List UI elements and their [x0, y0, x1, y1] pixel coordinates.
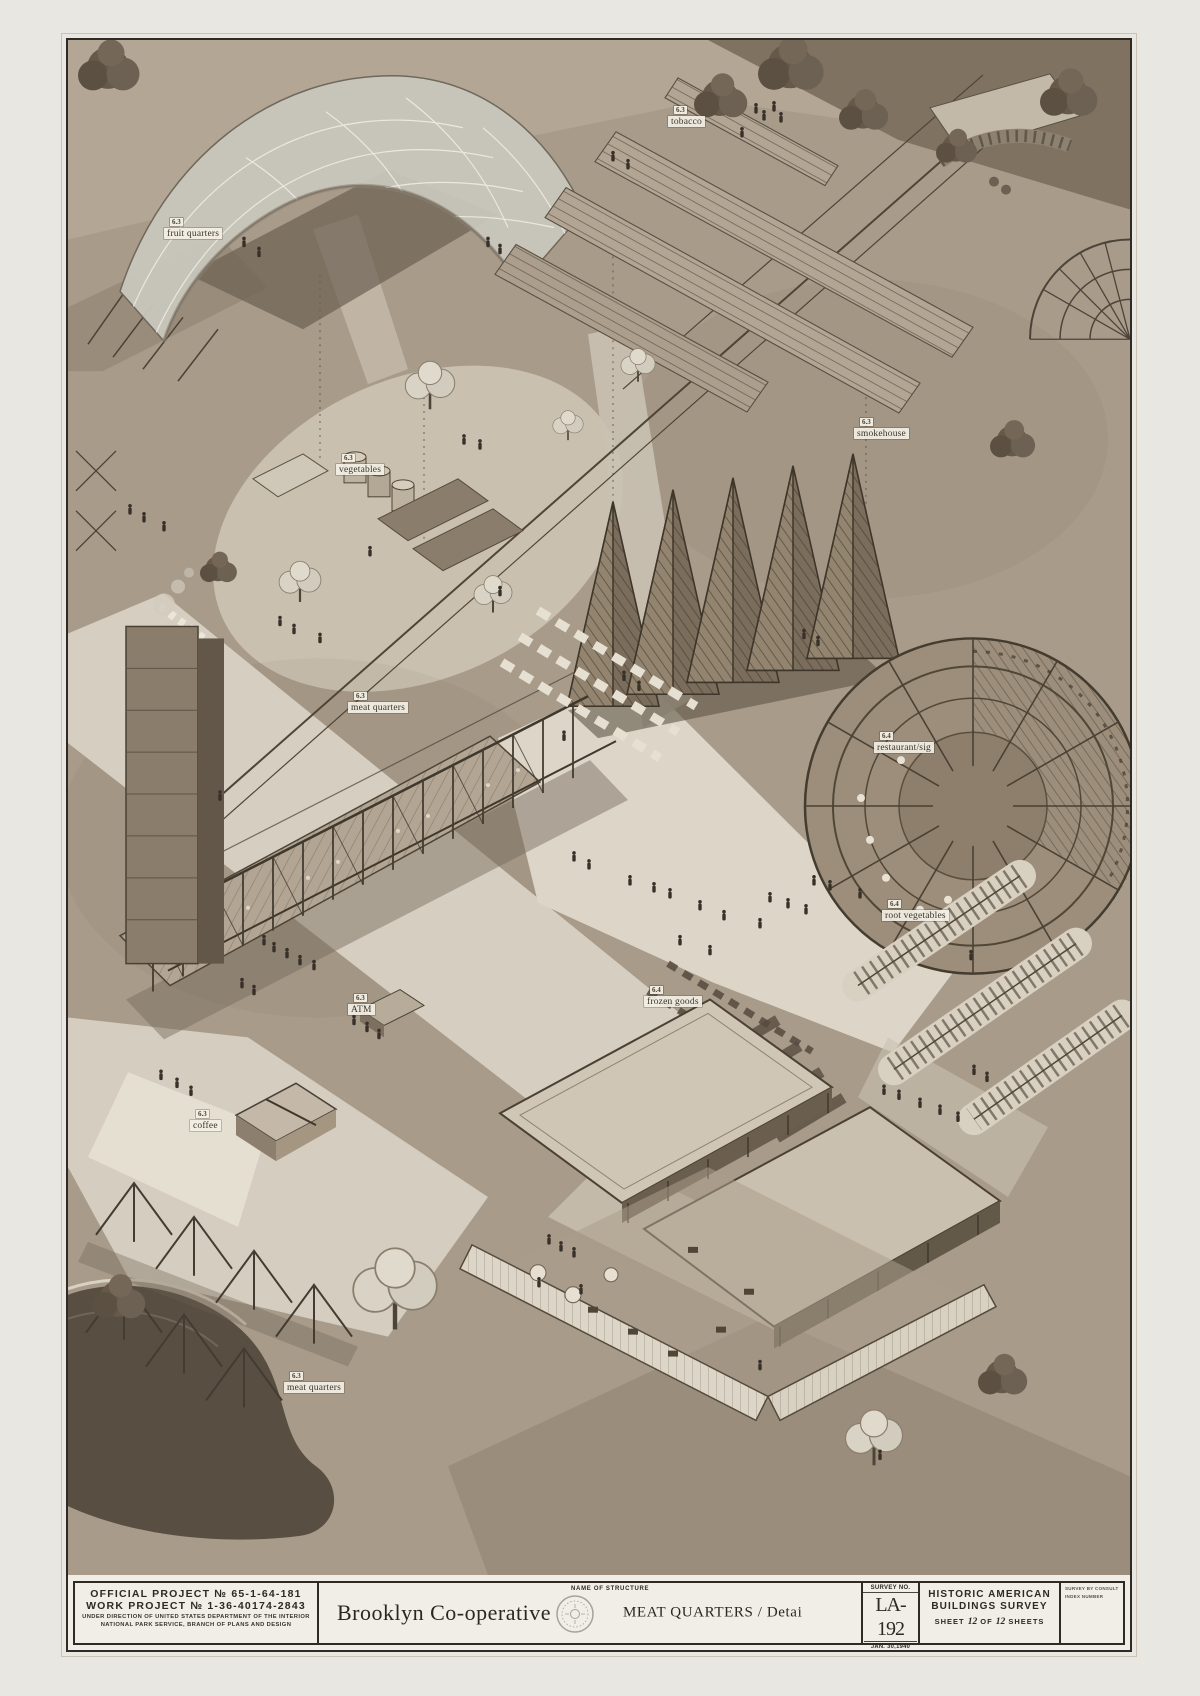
index-box-line-1: SURVEY BY CONSULT — [1065, 1586, 1119, 1591]
official-project-number: OFFICIAL PROJECT № 65-1-64-181 — [75, 1588, 317, 1600]
sheet-total: 12 — [996, 1617, 1006, 1627]
drawing-title: MEAT QUARTERS / Detai — [623, 1605, 802, 1622]
area-label-frozen-goods: 6.4frozen goods — [644, 986, 702, 1007]
area-label-text: vegetables — [336, 464, 384, 475]
area-label-smokehouse: 6.3smokehouse — [854, 418, 909, 439]
area-label-text: smokehouse — [854, 428, 909, 439]
axonometric-drawing: 6.3fruit quarters6.3tobacco6.3vegetables… — [68, 40, 1130, 1575]
area-label-tag: 6.4 — [650, 986, 663, 994]
stamp-seal-icon — [555, 1594, 595, 1634]
area-label-vegetables: 6.3vegetables — [336, 454, 384, 475]
habs-cell: HISTORIC AMERICAN BUILDINGS SURVEY SHEET… — [920, 1583, 1061, 1643]
area-label-tag: 6.3 — [170, 218, 183, 226]
project-info-cell: OFFICIAL PROJECT № 65-1-64-181 WORK PROJ… — [75, 1583, 319, 1643]
area-label-tag: 6.3 — [354, 692, 367, 700]
area-label-atm: 6.3ATM — [348, 994, 375, 1015]
area-label-text: meat quarters — [284, 1382, 344, 1393]
sheet-suffix: SHEETS — [1008, 1617, 1044, 1626]
direction-line-1: UNDER DIRECTION OF UNITED STATES DEPARTM… — [75, 1614, 317, 1621]
area-label-fruit-quarters: 6.3fruit quarters — [164, 218, 222, 239]
survey-sheet: 6.3fruit quarters6.3tobacco6.3vegetables… — [66, 38, 1132, 1652]
area-label-tag: 6.4 — [880, 732, 893, 740]
work-project-number: WORK PROJECT № 1-36-40174-2843 — [75, 1600, 317, 1612]
drawing-labels-layer: 6.3fruit quarters6.3tobacco6.3vegetables… — [68, 40, 1130, 1575]
index-box-line-2: INDEX NUMBER — [1065, 1594, 1119, 1599]
area-label-text: ATM — [348, 1004, 375, 1015]
area-label-tag: 6.3 — [354, 994, 367, 1002]
area-label-tag: 6.3 — [290, 1372, 303, 1380]
direction-line-2: NATIONAL PARK SERVICE, BRANCH OF PLANS A… — [75, 1622, 317, 1629]
area-label-text: frozen goods — [644, 996, 702, 1007]
area-label-coffee: 6.3coffee — [190, 1110, 221, 1131]
area-label-text: restaurant/sig — [874, 742, 934, 753]
sheet-prefix: SHEET — [935, 1617, 965, 1626]
survey-date: JAN. 30,1940 — [864, 1641, 917, 1650]
sheet-of: OF — [980, 1617, 992, 1626]
name-of-structure-label: NAME OF STRUCTURE — [571, 1586, 649, 1592]
area-label-tag: 6.3 — [860, 418, 873, 426]
area-label-tobacco: 6.3tobacco — [668, 106, 705, 127]
survey-no-cell: SURVEY NO. LA-192 JAN. 30,1940 — [863, 1583, 920, 1643]
sheet-number: 12 — [968, 1617, 978, 1627]
area-label-text: fruit quarters — [164, 228, 222, 239]
sheet-number-line: SHEET 12 OF 12 SHEETS — [920, 1617, 1059, 1627]
area-label-tag: 6.3 — [196, 1110, 209, 1118]
area-label-tag: 6.3 — [674, 106, 687, 114]
area-label-text: coffee — [190, 1120, 221, 1131]
area-label-meat-quarters-south: 6.3meat quarters — [284, 1372, 344, 1393]
area-label-text: root vegetables — [882, 910, 949, 921]
habs-line-1: HISTORIC AMERICAN — [920, 1589, 1059, 1601]
area-label-meat-quarters: 6.3meat quarters — [348, 692, 408, 713]
area-label-tag: 6.4 — [888, 900, 901, 908]
area-label-root-vegetables: 6.4root vegetables — [882, 900, 949, 921]
survey-no-label: SURVEY NO. — [863, 1585, 918, 1593]
area-label-tag: 6.3 — [342, 454, 355, 462]
title-block: OFFICIAL PROJECT № 65-1-64-181 WORK PROJ… — [73, 1581, 1125, 1645]
habs-line-2: BUILDINGS SURVEY — [920, 1601, 1059, 1613]
structure-name: Brooklyn Co-operative — [337, 1600, 551, 1626]
area-label-restaurant: 6.4restaurant/sig — [874, 732, 934, 753]
area-label-text: meat quarters — [348, 702, 408, 713]
area-label-text: tobacco — [668, 116, 705, 127]
survey-number: LA-192 — [863, 1593, 918, 1641]
page: 6.3fruit quarters6.3tobacco6.3vegetables… — [0, 0, 1200, 1696]
index-number-cell: SURVEY BY CONSULT INDEX NUMBER — [1061, 1583, 1123, 1643]
structure-name-cell: Brooklyn Co-operative NAME OF STRUCTURE … — [319, 1583, 863, 1643]
